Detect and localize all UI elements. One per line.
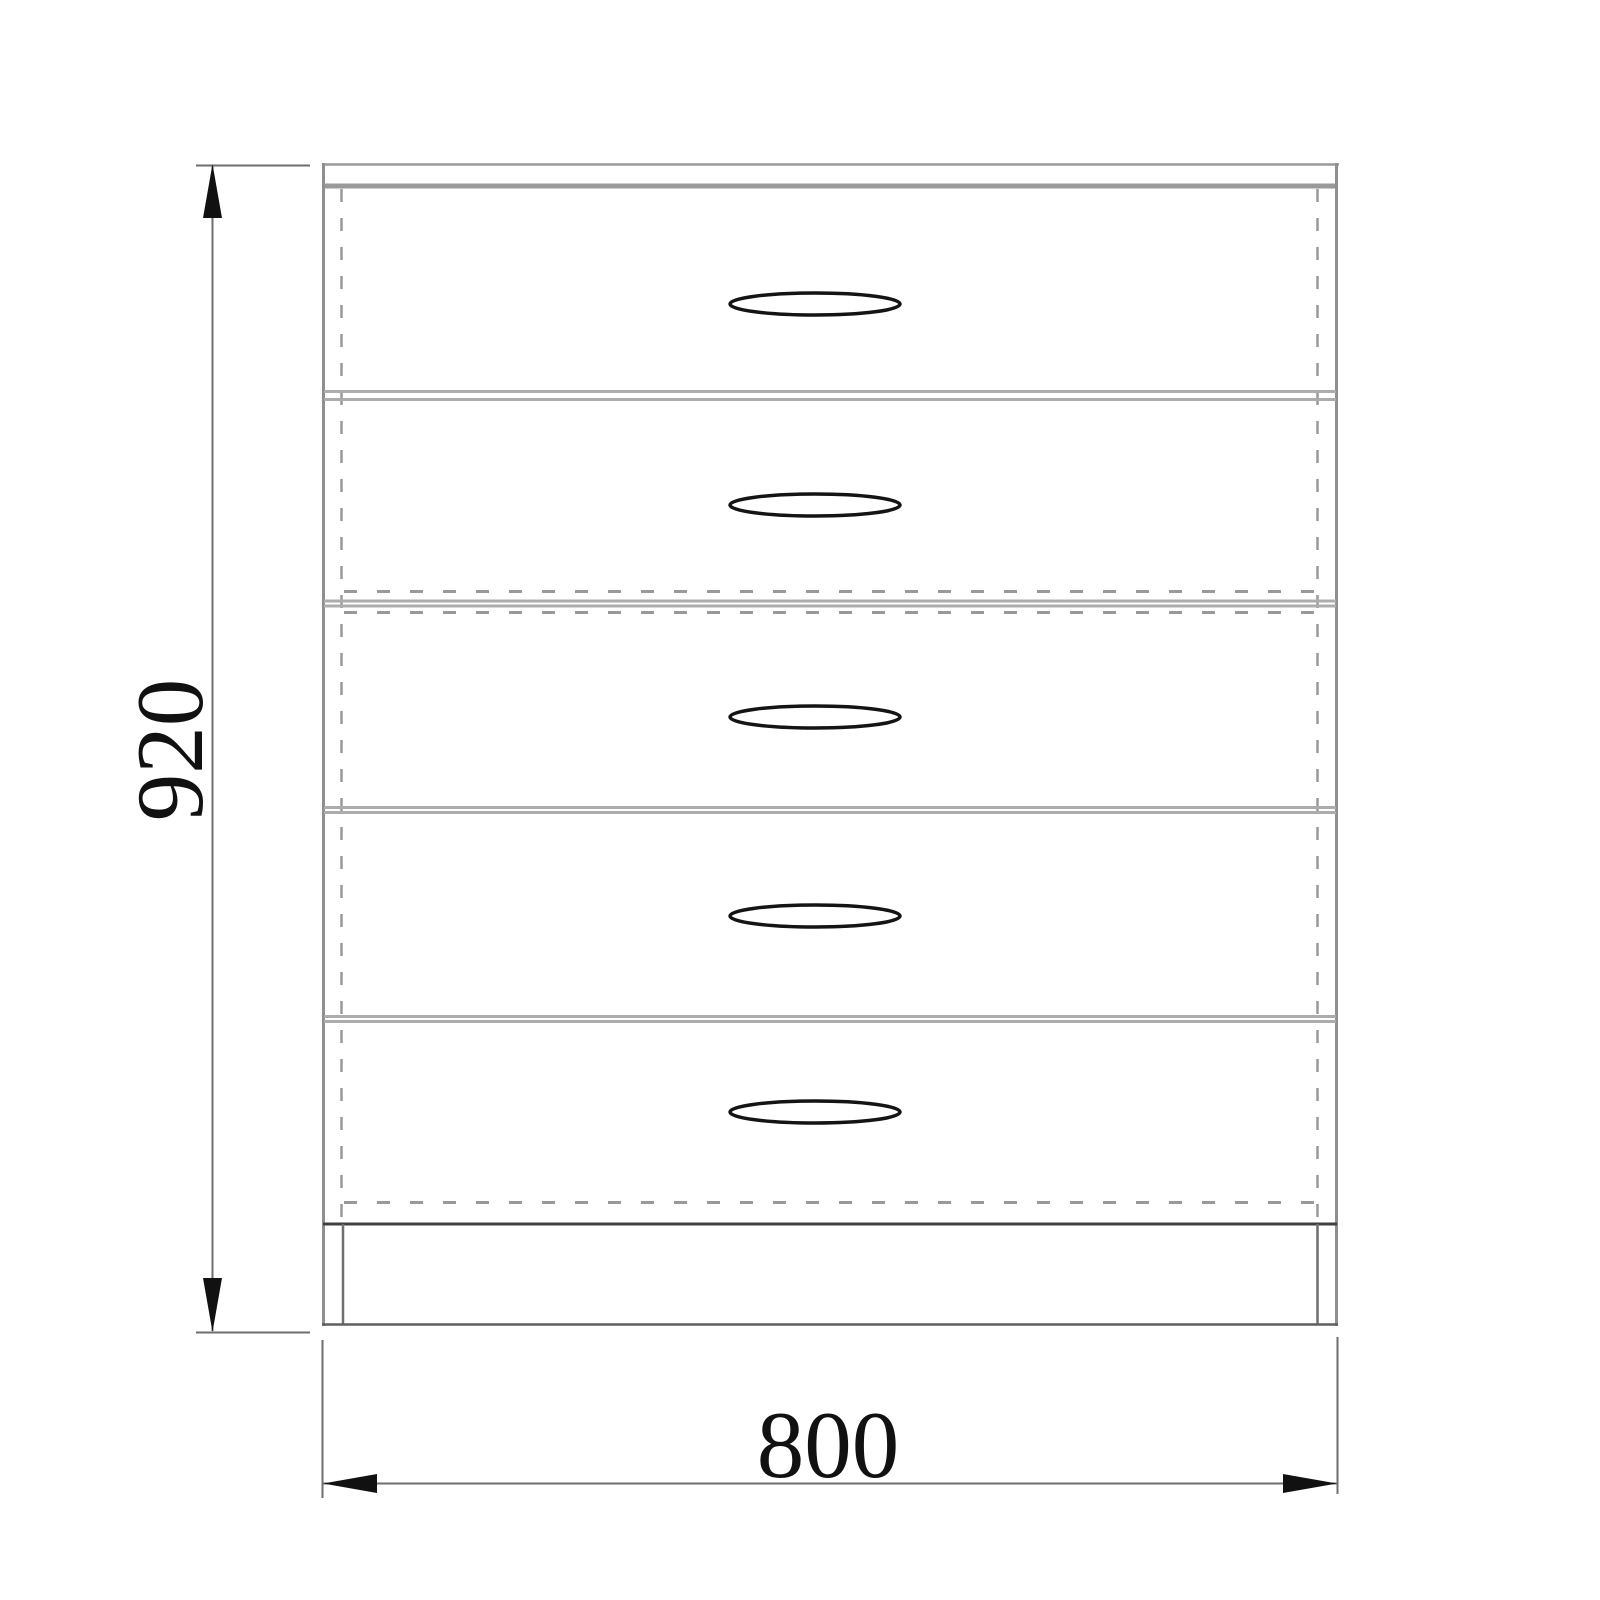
width-dimension: 800 — [323, 1337, 1338, 1498]
arrow-down-icon — [203, 1278, 222, 1332]
drawer-2-handle — [730, 494, 900, 516]
drawer-front-4 — [323, 814, 1337, 1016]
arrow-left-icon — [323, 1474, 377, 1493]
drawer-front-1-area — [323, 188, 1337, 391]
drawer-separator-2 — [324, 601, 1336, 606]
drawer-5-handle — [730, 1101, 900, 1123]
arrow-up-icon — [203, 164, 222, 218]
drawer-front-5 — [323, 1022, 1337, 1224]
height-dimension: 920 — [117, 164, 310, 1333]
plinth — [322, 1224, 1338, 1325]
drawer-1-handle — [730, 293, 900, 315]
drawer-front-2 — [323, 399, 1337, 600]
arrow-right-icon — [1283, 1474, 1337, 1493]
height-dimension-label: 920 — [117, 679, 223, 822]
drawer-4-handle — [730, 905, 900, 927]
chest-of-drawers-drawing: 920 800 — [0, 0, 1600, 1600]
drawer-separator-3 — [324, 808, 1336, 813]
drawer-separator-4 — [324, 1017, 1336, 1022]
drawer-front-1 — [323, 188, 1337, 391]
technical-drawing-page: 920 800 — [0, 0, 1600, 1600]
drawer-3-handle — [730, 706, 900, 728]
cabinet — [322, 163, 1339, 1326]
top-panel — [322, 165, 1339, 187]
drawer-front-3 — [323, 606, 1337, 808]
drawer-separator-1 — [324, 392, 1336, 400]
width-dimension-label: 800 — [757, 1392, 900, 1498]
